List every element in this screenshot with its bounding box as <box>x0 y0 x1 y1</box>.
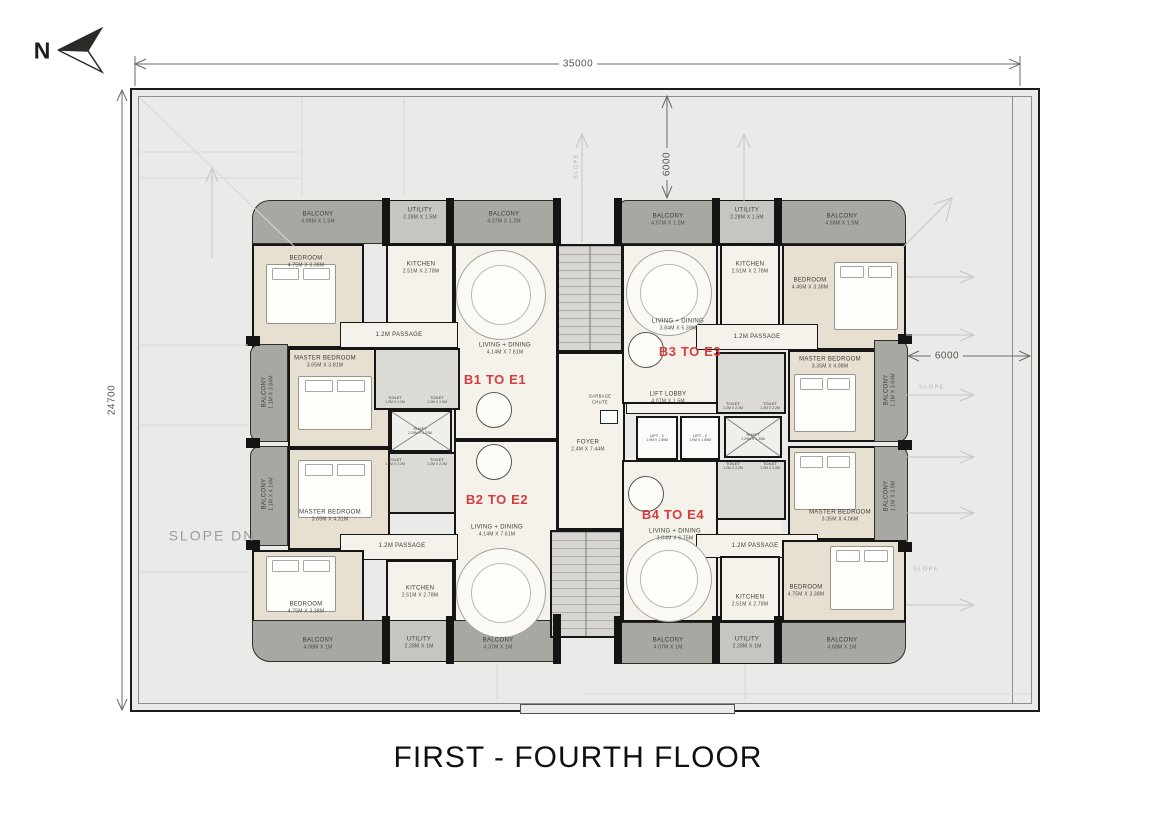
bed <box>830 546 894 610</box>
label-b3-passage: 1.2M PASSAGE <box>734 333 781 341</box>
label-b3-living: LIVING + DINING3.84M X 5.39M <box>652 318 704 333</box>
label-unit-b3: B3 TO E3 <box>659 343 721 361</box>
room-b3-kitchen <box>720 244 780 330</box>
wall-pier <box>553 614 561 664</box>
label-b2-balcony-side: BALCONY1.1M X 4.14M <box>261 477 276 511</box>
label-toilet: TOILET1.2M X 2.2M <box>385 395 405 405</box>
label-b2-bedroom: BEDROOM4.75M X 3.38M <box>288 601 325 616</box>
label-b2-balcony-bottom2: BALCONY4.37M X 1M <box>483 637 514 652</box>
garbage-chute-fixture <box>600 410 618 424</box>
label-b2-utility: UTILITY2.28M X 1M <box>405 636 434 651</box>
label-b4-balcony-bottom: BALCONY4.07M X 1M <box>653 637 684 652</box>
label-b4-balcony-bottom2: BALCONY4.68M X 1M <box>827 637 858 652</box>
label-b1-balcony-top2: BALCONY4.37M X 1.2M <box>487 211 521 226</box>
label-b4-balcony-side: BALCONY1.1M X 3.9M <box>883 481 898 512</box>
label-b4-master: MASTER BEDROOM3.35M X 4.06M <box>809 509 871 524</box>
living-rug <box>626 536 712 622</box>
dim-overall-width: 35000 <box>559 57 597 71</box>
label-b3-utility: UTILITY2.28M X 1.5M <box>730 207 764 222</box>
living-rug <box>456 548 546 638</box>
wall-pier <box>774 198 782 246</box>
label-b4-utility: UTILITY2.28M X 1M <box>733 636 762 651</box>
label-b2-living: LIVING + DINING4.14M X 7.61M <box>471 524 523 539</box>
wall-pier <box>246 438 260 448</box>
slope-label: SLOPE <box>911 566 941 573</box>
north-arrow-icon <box>58 28 102 72</box>
label-toilet: TOILET1.2M X 2.2M <box>427 395 447 405</box>
room-stairs-top <box>557 244 623 352</box>
label-b3-master: MASTER BEDROOM3.35M X 4.98M <box>799 356 861 371</box>
label-b4-kitchen: KITCHEN2.51M X 2.78M <box>732 594 769 609</box>
label-shaft-west: SHAFT2.29M X 1.33M <box>408 426 432 436</box>
bed <box>794 452 856 510</box>
wall-pier <box>446 198 454 246</box>
wall-pier <box>614 198 622 246</box>
north-label: N <box>34 35 51 66</box>
bed <box>794 374 856 432</box>
label-b1-kitchen: KITCHEN2.51M X 2.78M <box>403 261 440 276</box>
page-title: FIRST - FOURTH FLOOR <box>394 738 763 779</box>
label-toilet: TOILET1.2M X 2.2M <box>427 457 447 467</box>
label-b4-passage: 1.2M PASSAGE <box>732 542 779 550</box>
wall-pier <box>898 440 912 450</box>
wall-pier <box>246 336 260 346</box>
dim-terrace-right: 6000 <box>931 349 963 363</box>
label-b1-balcony-side: BALCONY1.1M X 3.84M <box>261 375 276 409</box>
label-lift-2: LIFT - 21.9M X 1.55M <box>689 433 711 443</box>
label-b3-balcony-top2: BALCONY4.58M X 1.5M <box>825 213 859 228</box>
dining-table <box>476 392 512 428</box>
label-b3-balcony-top: BALCONY4.07M X 1.2M <box>651 213 685 228</box>
wall-pier <box>774 616 782 664</box>
label-shaft-east: SHAFT2.29M X 1.33M <box>741 432 765 442</box>
wall-pier <box>382 198 390 246</box>
dim-overall-height: 24700 <box>105 381 119 419</box>
living-rug <box>456 250 546 340</box>
bed <box>834 262 898 330</box>
label-toilet: TOILET1.2M X 2.2M <box>723 401 743 411</box>
label-toilet: TOILET1.2M X 2.2M <box>385 457 405 467</box>
bed <box>298 376 372 430</box>
wall-pier <box>712 616 720 664</box>
label-b2-passage: 1.2M PASSAGE <box>379 542 426 550</box>
label-b2-master: MASTER BEDROOM3.65M X 4.31M <box>299 509 361 524</box>
label-unit-b1: B1 TO E1 <box>464 371 526 389</box>
label-b4-bedroom: BEDROOM4.75M X 3.38M <box>788 584 825 599</box>
label-b2-balcony-bottom: BALCONY4.98M X 1M <box>303 637 334 652</box>
wall-pier <box>712 198 720 246</box>
label-foyer: FOYER2.4M X 7.44M <box>571 439 605 454</box>
label-lift-1: LIFT - 11.9M X 1.55M <box>646 433 668 443</box>
label-b3-balcony-side: BALCONY1.1M X 3.84M <box>883 373 898 407</box>
wall-pier <box>553 198 561 246</box>
label-unit-b2: B2 TO E2 <box>466 491 528 509</box>
parapet-right-line <box>1012 96 1013 704</box>
label-b3-kitchen: KITCHEN2.51M X 2.78M <box>732 261 769 276</box>
label-b1-utility: UTILITY2.28M X 1.5M <box>403 207 437 222</box>
label-b1-passage: 1.2M PASSAGE <box>376 331 423 339</box>
slope-label: SLOPE <box>917 384 947 391</box>
label-b1-bedroom: BEDROOM4.75M X 3.38M <box>288 255 325 270</box>
label-unit-b4: B4 TO E4 <box>642 506 704 524</box>
entry-step <box>520 704 735 714</box>
wall-pier <box>898 542 912 552</box>
label-toilet: TOILET1.2M X 2.2M <box>760 461 780 471</box>
slope-label: SLOPE <box>573 151 580 181</box>
room-b4-kitchen <box>720 556 780 622</box>
wall-pier <box>446 616 454 664</box>
dining-table <box>476 444 512 480</box>
label-toilet: TOILET1.2M X 2.2M <box>760 401 780 411</box>
label-b2-kitchen: KITCHEN2.51M X 2.78M <box>402 585 439 600</box>
dim-terrace-top: 6000 <box>660 148 674 180</box>
label-toilet: TOILET1.2M X 2.2M <box>723 461 743 471</box>
label-b4-living: LIVING + DINING3.84M X 6.75M <box>649 528 701 543</box>
label-garbage-chute: GARBAGE CHUTE <box>584 393 616 404</box>
wall-pier <box>614 616 622 664</box>
label-b1-living: LIVING + DINING4.14M X 7.61M <box>479 342 531 357</box>
label-b1-balcony-top: BALCONY4.98M X 1.5M <box>301 211 335 226</box>
slope-dn-label: SLOPE DN <box>169 527 256 546</box>
label-lift-lobby: LIFT LOBBY4.07M X 1.5M <box>650 391 687 406</box>
floor-plan-sheet: N 35000 24700 6000 6000 SLOPE SLOPE SLOP… <box>0 0 1167 825</box>
wall-pier <box>898 334 912 344</box>
bed <box>266 264 336 324</box>
label-b3-bedroom: BEDROOM4.45M X 3.38M <box>792 277 829 292</box>
wall-pier <box>382 616 390 664</box>
label-b1-master: MASTER BEDROOM3.65M X 3.81M <box>294 355 356 370</box>
